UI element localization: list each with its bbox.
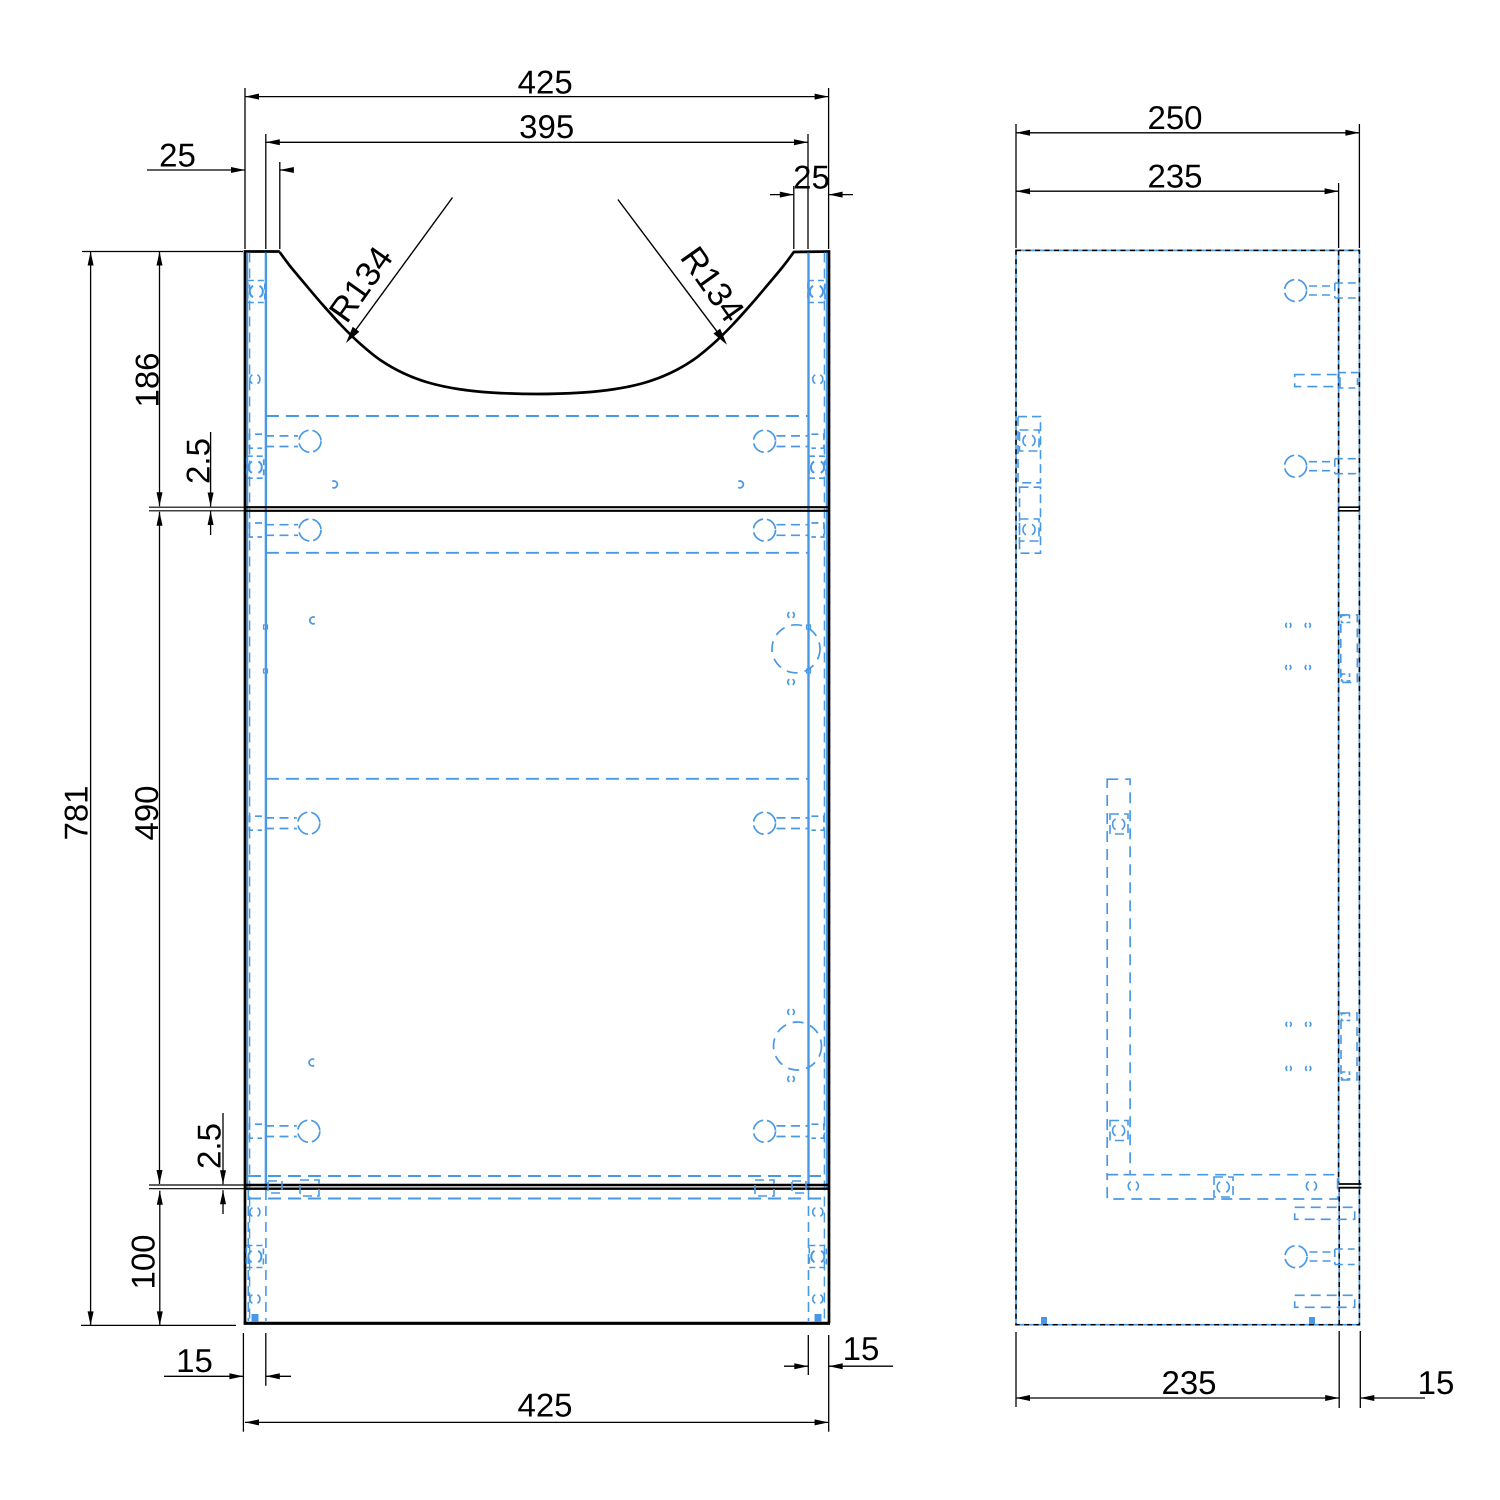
svg-text:235: 235 bbox=[1161, 1364, 1216, 1401]
svg-text:186: 186 bbox=[129, 352, 166, 407]
svg-text:100: 100 bbox=[125, 1234, 162, 1289]
svg-text:425: 425 bbox=[518, 64, 573, 101]
svg-text:490: 490 bbox=[128, 785, 165, 840]
svg-text:781: 781 bbox=[58, 785, 95, 840]
svg-text:425: 425 bbox=[517, 1387, 572, 1424]
svg-text:235: 235 bbox=[1147, 158, 1202, 195]
svg-text:250: 250 bbox=[1147, 99, 1202, 136]
svg-text:15: 15 bbox=[1418, 1364, 1455, 1401]
svg-text:25: 25 bbox=[159, 137, 196, 174]
svg-text:2.5: 2.5 bbox=[191, 1123, 228, 1169]
svg-text:25: 25 bbox=[793, 159, 830, 196]
svg-text:15: 15 bbox=[843, 1330, 880, 1367]
svg-text:2.5: 2.5 bbox=[180, 438, 217, 484]
svg-text:395: 395 bbox=[519, 108, 574, 145]
svg-text:15: 15 bbox=[176, 1342, 213, 1379]
